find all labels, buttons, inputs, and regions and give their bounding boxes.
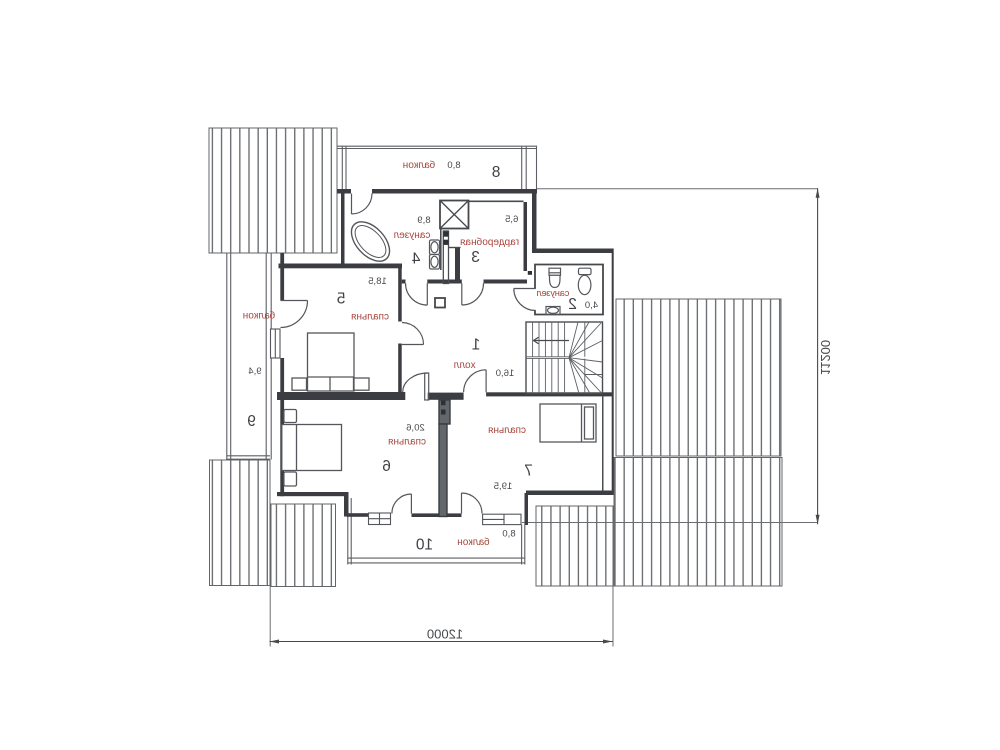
svg-text:1: 1 <box>472 337 481 354</box>
svg-text:8: 8 <box>492 164 501 181</box>
svg-text:4: 4 <box>411 251 420 268</box>
svg-text:6: 6 <box>382 458 391 475</box>
svg-text:9: 9 <box>247 413 256 430</box>
svg-text:санузел: санузел <box>537 288 570 298</box>
svg-text:12000: 12000 <box>427 627 463 642</box>
svg-text:балкон: балкон <box>243 310 275 322</box>
svg-text:4,0: 4,0 <box>585 300 598 311</box>
svg-text:2: 2 <box>568 296 577 313</box>
svg-text:9,4: 9,4 <box>248 366 261 377</box>
svg-text:спальня: спальня <box>488 425 526 436</box>
svg-text:11200: 11200 <box>818 340 833 375</box>
svg-text:8,0: 8,0 <box>447 160 460 171</box>
svg-text:спальня: спальня <box>388 437 426 448</box>
svg-text:санузел: санузел <box>394 230 431 241</box>
svg-text:7: 7 <box>524 463 533 480</box>
svg-text:16,0: 16,0 <box>496 368 515 379</box>
svg-text:3: 3 <box>471 249 480 266</box>
svg-text:балкон: балкон <box>403 159 435 171</box>
svg-text:20,6: 20,6 <box>406 422 425 433</box>
svg-text:18,5: 18,5 <box>368 276 387 287</box>
svg-text:8,0: 8,0 <box>502 528 515 539</box>
svg-text:6,5: 6,5 <box>505 214 518 225</box>
svg-text:8,9: 8,9 <box>417 215 430 226</box>
svg-text:19,5: 19,5 <box>494 481 513 492</box>
svg-text:5: 5 <box>337 291 346 308</box>
svg-text:балкон: балкон <box>457 536 489 548</box>
svg-text:холл: холл <box>453 360 475 371</box>
svg-text:гардеробная: гардеробная <box>460 236 519 248</box>
svg-text:спальня: спальня <box>351 312 389 323</box>
svg-text:10: 10 <box>416 537 434 554</box>
